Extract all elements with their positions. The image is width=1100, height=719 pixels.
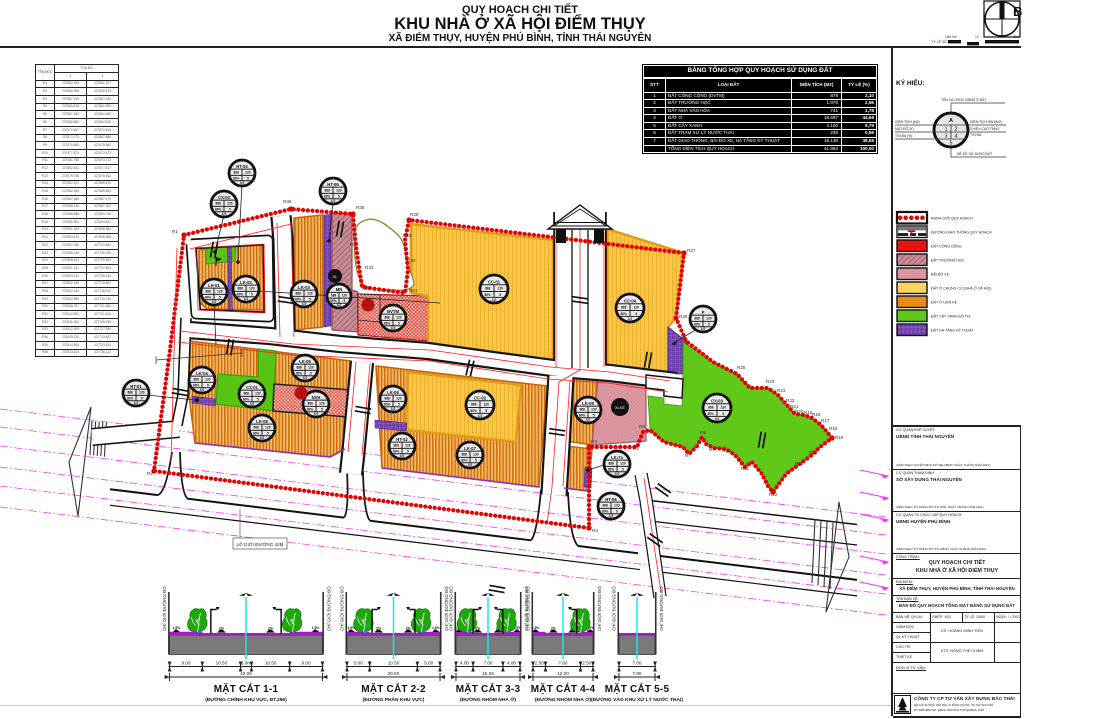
svg-text:10m 0m: 10m 0m [945,35,957,39]
svg-text:MẬT ĐỘ XD: MẬT ĐỘ XD [895,126,914,131]
svg-text:TỶ LỆ XÍCH: TỶ LỆ XÍCH [931,39,951,44]
svg-text:30m: 30m [1013,35,1020,39]
svg-text:ĐƯỜNG GIAO THÔNG QUY HOẠCH: ĐƯỜNG GIAO THÔNG QUY HOẠCH [931,229,992,234]
svg-text:1: 1 [945,127,948,133]
svg-text:DIỆN TÍCH SÀN(M2): DIỆN TÍCH SÀN(M2) [970,119,1002,124]
svg-text:B: B [1013,4,1022,19]
svg-text:2: 2 [955,127,958,133]
svg-text:ĐẤT Ở CHUNG CƯ (NHÀ Ở XÃ HỘI): ĐẤT Ở CHUNG CƯ (NHÀ Ở XÃ HỘI) [931,285,991,290]
svg-text:HỆ SỐ SỬ DỤNG ĐẤT: HỆ SỐ SỬ DỤNG ĐẤT [957,151,992,156]
svg-text:TÊN VÀ CHỨC NĂNG Ô ĐẤT: TÊN VÀ CHỨC NĂNG Ô ĐẤT [941,97,986,102]
svg-text:ĐẤT HẠ TẦNG KỸ THUẬT: ĐẤT HẠ TẦNG KỸ THUẬT [931,327,975,332]
svg-text:BÃI ĐỖ XE: BÃI ĐỖ XE [931,271,950,276]
svg-text:ĐẤT Ở LIỀN KỀ: ĐẤT Ở LIỀN KỀ [931,299,958,304]
svg-text:DIỆN TÍCH (M2): DIỆN TÍCH (M2) [895,119,920,124]
svg-text:4: 4 [955,134,958,140]
svg-text:TỐI ĐA: TỐI ĐA [970,132,982,137]
svg-text:KÝ HIỆU:: KÝ HIỆU: [896,78,925,87]
svg-text:5: 5 [950,141,953,147]
svg-text:ĐẤT CÔNG CỘNG: ĐẤT CÔNG CỘNG [931,243,962,248]
svg-text:CHIỀU CAO TẦNG: CHIỀU CAO TẦNG [970,126,1000,131]
svg-text:ĐẤT CÂY XANH ĐÔ THỊ: ĐẤT CÂY XANH ĐÔ THỊ [931,313,971,318]
svg-text:RANH GIỚI QUY HOẠCH: RANH GIỚI QUY HOẠCH [931,215,973,220]
svg-text:A: A [949,118,953,124]
svg-text:TỐI ĐA (%): TỐI ĐA (%) [895,133,912,138]
svg-text:ĐẤT TRƯỜNG HỌC: ĐẤT TRƯỜNG HỌC [931,257,965,262]
svg-text:3: 3 [945,134,948,140]
svg-text:10: 10 [975,35,979,39]
